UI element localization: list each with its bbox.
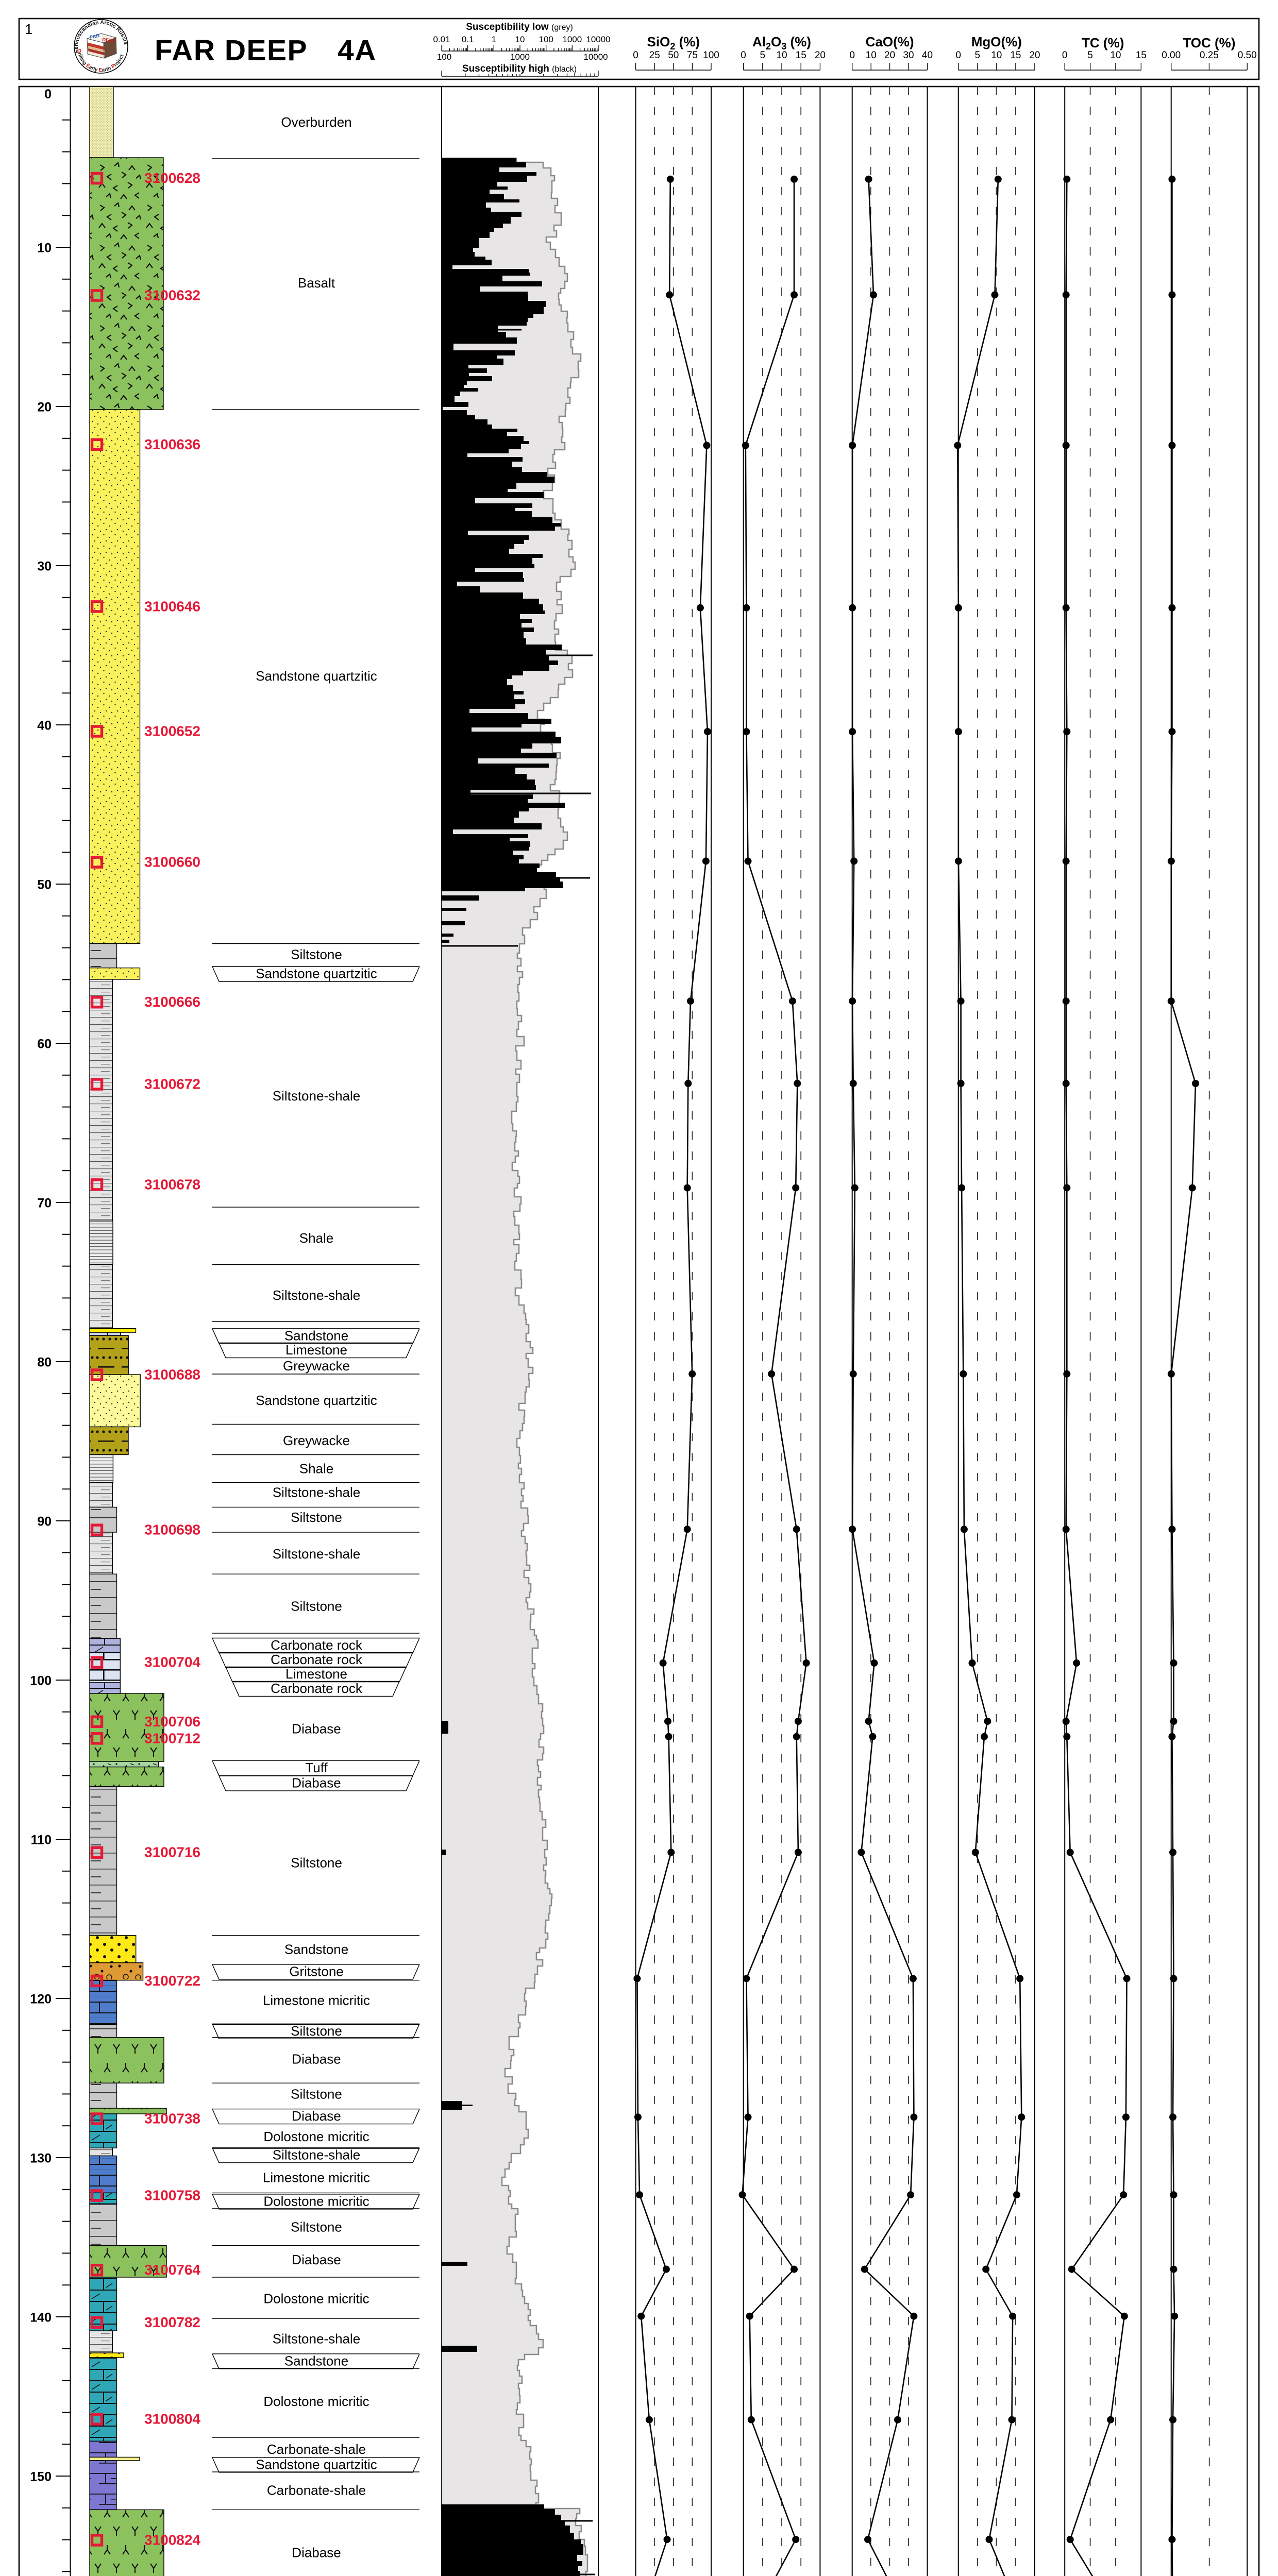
svg-text:10: 10 bbox=[991, 50, 1002, 61]
svg-text:Carbonate rock: Carbonate rock bbox=[271, 1637, 363, 1653]
svg-text:Greywacke: Greywacke bbox=[283, 1433, 350, 1448]
svg-text:Diabase: Diabase bbox=[292, 1775, 341, 1790]
svg-text:3100646: 3100646 bbox=[144, 598, 200, 614]
svg-text:15: 15 bbox=[1010, 50, 1021, 61]
svg-text:Sandstone quartzitic: Sandstone quartzitic bbox=[256, 1393, 377, 1408]
svg-text:CaO(%): CaO(%) bbox=[866, 34, 914, 49]
svg-text:MgO(%): MgO(%) bbox=[971, 34, 1022, 49]
svg-text:100: 100 bbox=[539, 35, 553, 44]
svg-text:10: 10 bbox=[776, 50, 787, 61]
svg-text:Susceptibility high (black): Susceptibility high (black) bbox=[462, 63, 577, 74]
svg-text:0.01: 0.01 bbox=[433, 35, 450, 44]
svg-text:Siltstone: Siltstone bbox=[291, 947, 342, 962]
svg-text:Siltstone: Siltstone bbox=[291, 1855, 342, 1870]
svg-text:Siltstone-shale: Siltstone-shale bbox=[273, 1484, 361, 1500]
svg-text:Sandstone quartzitic: Sandstone quartzitic bbox=[256, 668, 377, 684]
svg-text:Dolostone micritic: Dolostone micritic bbox=[263, 2394, 369, 2409]
svg-text:90: 90 bbox=[37, 1515, 52, 1529]
svg-text:5: 5 bbox=[975, 50, 981, 61]
svg-text:20: 20 bbox=[815, 50, 826, 61]
svg-text:3100628: 3100628 bbox=[144, 170, 200, 186]
svg-text:Tuff: Tuff bbox=[305, 1760, 328, 1775]
svg-text:5: 5 bbox=[760, 50, 766, 61]
svg-text:FAR DEEP: FAR DEEP bbox=[155, 34, 308, 67]
svg-text:Dolostone micritic: Dolostone micritic bbox=[263, 2129, 369, 2144]
svg-text:3100712: 3100712 bbox=[144, 1730, 200, 1746]
svg-text:Siltstone-shale: Siltstone-shale bbox=[273, 1088, 361, 1104]
svg-text:1: 1 bbox=[492, 35, 496, 44]
svg-text:Limestone: Limestone bbox=[285, 1666, 347, 1682]
svg-text:3100660: 3100660 bbox=[144, 854, 200, 870]
svg-text:100: 100 bbox=[703, 50, 719, 61]
svg-text:0: 0 bbox=[741, 50, 746, 61]
svg-text:Carbonate-shale: Carbonate-shale bbox=[267, 2483, 366, 2498]
svg-text:Greywacke: Greywacke bbox=[283, 1358, 350, 1374]
svg-text:25: 25 bbox=[649, 50, 660, 61]
svg-text:Limestone micritic: Limestone micritic bbox=[263, 2170, 370, 2185]
svg-text:3100758: 3100758 bbox=[144, 2188, 200, 2204]
svg-text:50: 50 bbox=[37, 878, 52, 892]
svg-text:15: 15 bbox=[1136, 50, 1147, 61]
svg-text:1000: 1000 bbox=[510, 52, 530, 62]
svg-text:10: 10 bbox=[515, 35, 525, 44]
svg-text:Sandstone: Sandstone bbox=[284, 1942, 348, 1957]
svg-text:Carbonate rock: Carbonate rock bbox=[271, 1652, 363, 1667]
svg-text:0: 0 bbox=[1062, 50, 1068, 61]
svg-text:Limestone micritic: Limestone micritic bbox=[263, 1993, 370, 2008]
svg-text:3100666: 3100666 bbox=[144, 994, 200, 1010]
svg-text:20: 20 bbox=[37, 400, 52, 415]
svg-text:Siltstone: Siltstone bbox=[291, 2219, 342, 2235]
svg-text:TC (%): TC (%) bbox=[1082, 35, 1124, 50]
svg-text:Siltstone-shale: Siltstone-shale bbox=[273, 2147, 361, 2162]
svg-text:Carbonate rock: Carbonate rock bbox=[271, 1681, 363, 1696]
svg-text:20: 20 bbox=[1029, 50, 1040, 61]
svg-text:Sandstone quartzitic: Sandstone quartzitic bbox=[256, 2456, 377, 2472]
svg-text:Limestone: Limestone bbox=[285, 1342, 347, 1358]
svg-text:50: 50 bbox=[668, 50, 679, 61]
svg-text:3100804: 3100804 bbox=[144, 2411, 200, 2427]
svg-text:0: 0 bbox=[44, 87, 52, 101]
svg-text:Diabase: Diabase bbox=[292, 2545, 341, 2561]
svg-text:3100672: 3100672 bbox=[144, 1076, 200, 1092]
svg-text:0.25: 0.25 bbox=[1200, 50, 1219, 61]
svg-text:120: 120 bbox=[30, 1992, 52, 2007]
svg-text:15: 15 bbox=[796, 50, 806, 61]
svg-text:3100738: 3100738 bbox=[144, 2111, 200, 2127]
svg-text:3100706: 3100706 bbox=[144, 1714, 200, 1730]
svg-text:Dolostone micritic: Dolostone micritic bbox=[263, 2193, 369, 2209]
svg-text:60: 60 bbox=[37, 1037, 52, 1052]
svg-text:4A: 4A bbox=[338, 34, 377, 67]
svg-text:Gritstone: Gritstone bbox=[289, 1963, 344, 1979]
svg-text:1000: 1000 bbox=[562, 35, 582, 44]
svg-text:Susceptibility low (grey): Susceptibility low (grey) bbox=[466, 22, 573, 32]
svg-text:Siltstone: Siltstone bbox=[291, 1510, 342, 1525]
svg-text:Diabase: Diabase bbox=[292, 2108, 341, 2124]
svg-text:3100704: 3100704 bbox=[144, 1654, 200, 1670]
svg-text:3100722: 3100722 bbox=[144, 1973, 200, 1989]
svg-text:Carbonate-shale: Carbonate-shale bbox=[267, 2442, 366, 2457]
svg-text:Siltstone-shale: Siltstone-shale bbox=[273, 2331, 361, 2347]
svg-text:0: 0 bbox=[955, 50, 961, 61]
svg-text:20: 20 bbox=[884, 50, 895, 61]
svg-text:3100824: 3100824 bbox=[144, 2532, 200, 2548]
svg-text:3100678: 3100678 bbox=[144, 1176, 200, 1192]
svg-text:130: 130 bbox=[30, 2151, 52, 2166]
svg-text:3100764: 3100764 bbox=[144, 2262, 200, 2278]
svg-text:Diabase: Diabase bbox=[292, 2051, 341, 2066]
svg-text:Siltstone: Siltstone bbox=[291, 2086, 342, 2102]
svg-text:30: 30 bbox=[903, 50, 914, 61]
svg-text:Basalt: Basalt bbox=[298, 275, 335, 291]
svg-text:Dolostone micritic: Dolostone micritic bbox=[263, 2291, 369, 2306]
svg-text:140: 140 bbox=[30, 2311, 52, 2325]
svg-text:30: 30 bbox=[37, 560, 52, 574]
svg-text:10000: 10000 bbox=[583, 52, 608, 62]
svg-text:10: 10 bbox=[866, 50, 877, 61]
svg-text:110: 110 bbox=[31, 1833, 52, 1848]
svg-text:3100782: 3100782 bbox=[144, 2314, 200, 2330]
svg-text:Sandstone quartzitic: Sandstone quartzitic bbox=[256, 966, 377, 981]
svg-text:80: 80 bbox=[37, 1355, 52, 1370]
svg-text:TOC (%): TOC (%) bbox=[1183, 35, 1235, 50]
svg-text:150: 150 bbox=[30, 2470, 52, 2484]
svg-text:Siltstone-shale: Siltstone-shale bbox=[273, 1287, 361, 1303]
svg-text:Diabase: Diabase bbox=[292, 1721, 341, 1737]
svg-text:70: 70 bbox=[37, 1196, 52, 1211]
svg-text:40: 40 bbox=[922, 50, 933, 61]
svg-text:Shale: Shale bbox=[299, 1461, 334, 1477]
svg-text:0.00: 0.00 bbox=[1162, 50, 1181, 61]
svg-text:10: 10 bbox=[37, 241, 52, 256]
svg-text:3100688: 3100688 bbox=[144, 1367, 200, 1383]
svg-text:1: 1 bbox=[25, 21, 33, 37]
svg-text:100: 100 bbox=[437, 52, 451, 62]
svg-text:3100698: 3100698 bbox=[144, 1522, 200, 1538]
svg-text:10: 10 bbox=[1110, 50, 1121, 61]
svg-text:Sandstone: Sandstone bbox=[284, 1328, 348, 1343]
svg-text:3100636: 3100636 bbox=[144, 436, 200, 452]
svg-text:Siltstone: Siltstone bbox=[291, 1599, 342, 1614]
svg-text:3100652: 3100652 bbox=[144, 723, 200, 739]
svg-text:Siltstone: Siltstone bbox=[291, 2023, 342, 2039]
svg-text:3100716: 3100716 bbox=[144, 1844, 200, 1860]
svg-text:0: 0 bbox=[849, 50, 855, 61]
svg-text:Diabase: Diabase bbox=[292, 2252, 341, 2267]
svg-text:Overburden: Overburden bbox=[281, 114, 351, 130]
svg-text:100: 100 bbox=[30, 1674, 52, 1688]
svg-text:Shale: Shale bbox=[299, 1230, 334, 1246]
svg-text:40: 40 bbox=[37, 719, 52, 733]
svg-text:75: 75 bbox=[687, 50, 698, 61]
svg-text:5: 5 bbox=[1087, 50, 1093, 61]
svg-text:Sandstone: Sandstone bbox=[284, 2353, 348, 2368]
svg-text:0: 0 bbox=[633, 50, 638, 61]
svg-text:0.1: 0.1 bbox=[462, 35, 474, 44]
svg-text:3100632: 3100632 bbox=[144, 287, 200, 303]
svg-text:0.50: 0.50 bbox=[1238, 50, 1257, 61]
svg-text:Siltstone-shale: Siltstone-shale bbox=[273, 1546, 361, 1562]
svg-text:10000: 10000 bbox=[586, 35, 610, 44]
